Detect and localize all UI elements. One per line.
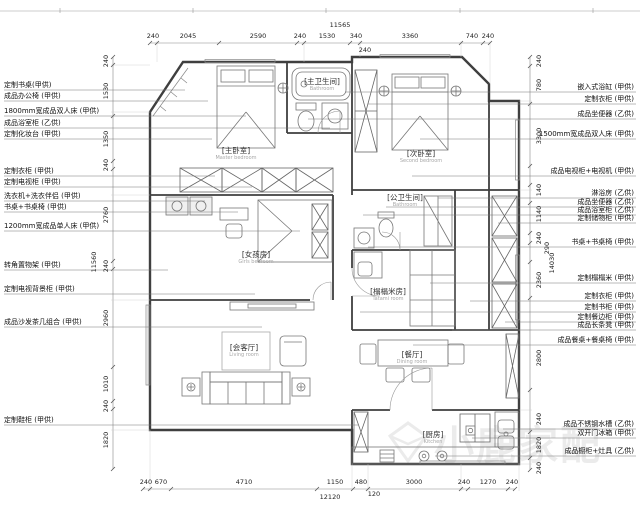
dim-bottom-seg: 480	[355, 478, 367, 486]
label-shoe-cabinet: 定制鞋柜 (甲供)	[4, 416, 54, 424]
room-label-public-bath: [公卫生间] Bathroom	[387, 194, 423, 208]
dim-right-seg: 3300	[535, 128, 543, 145]
room-label-dining-room: [餐厅] Dining room	[397, 351, 428, 365]
room-zh: [餐厅]	[402, 350, 423, 359]
leader-lines-left	[4, 90, 358, 425]
label-fridge: 双开门冰箱 (甲供)	[577, 429, 634, 437]
label-wardrobe: 定制衣柜 (甲供)	[4, 167, 54, 175]
dim-right-seg: 1820	[535, 437, 543, 454]
dim-right-seg: 2800	[535, 350, 543, 367]
dim-top-seg: 340	[350, 32, 362, 40]
label-sideboard: 定制餐边柜 (甲供)	[577, 313, 634, 321]
label-toilet-2: 成品坐便器 (乙供)	[577, 198, 634, 206]
label-desk-chair-2: 书桌+书桌椅 (甲供)	[571, 238, 634, 246]
dim-bottom-seg: 3000	[406, 478, 423, 486]
label-bath-cabinet-2: 成品浴室柜 (乙供)	[577, 206, 634, 214]
room-en: Dining room	[397, 359, 428, 365]
dim-right-total: 14030	[548, 253, 556, 274]
label-office-chair: 成品办公椅 (甲供)	[4, 92, 61, 100]
dim-left-seg: 1010	[102, 376, 110, 393]
dim-bottom-sub: 120	[368, 490, 380, 498]
dim-right-seg: 780	[535, 79, 543, 91]
dim-top-seg: 2045	[180, 32, 197, 40]
label-tv-cabinet: 定制电视柜 (甲供)	[4, 178, 61, 186]
label-wardrobe-2: 定制衣柜 (甲供)	[584, 95, 634, 103]
room-label-living-room: [会客厅] Living room	[229, 344, 258, 358]
dim-bottom-total: 12120	[320, 493, 341, 501]
label-kitchen-cabinet: 成品橱柜+灶具 (乙供)	[564, 447, 634, 455]
dim-top-seg: 240	[482, 32, 494, 40]
dim-left-seg: 240	[102, 159, 110, 171]
dim-top-seg: 740	[466, 32, 478, 40]
dim-top-seg: 2590	[250, 32, 267, 40]
room-zh: [主卫生间]	[304, 77, 340, 86]
label-dining-set: 成品餐桌+餐桌椅 (甲供)	[557, 336, 634, 344]
floor-plan-page: 小鹿家配	[0, 0, 640, 512]
label-bench: 成品长条凳 (甲供)	[577, 321, 634, 329]
label-storage-cabinet: 定制储物柜 (甲供)	[577, 214, 634, 222]
dim-bottom-seg: 1270	[480, 478, 497, 486]
dim-left-seg: 2760	[102, 207, 110, 224]
label-bathtub: 嵌入式浴缸 (甲供)	[577, 83, 634, 91]
room-label-kitchen: [厨房] Kitchen	[423, 431, 444, 445]
dim-right-seg: 2360	[535, 272, 543, 289]
room-label-master-bath: [主卫生间] Bathroom	[304, 78, 340, 92]
room-zh: [厨房]	[423, 430, 444, 439]
label-bookcase: 定制书柜 (甲供)	[584, 303, 634, 311]
dim-right-seg: 1140	[535, 206, 543, 223]
dim-bottom-seg: 240	[140, 478, 152, 486]
label-desk-chair: 书桌+书桌椅 (甲供)	[4, 203, 67, 211]
room-zh: [公卫生间]	[387, 193, 423, 202]
label-dresser: 定制化妆台 (甲供)	[4, 130, 61, 138]
dim-left-seg: 2960	[102, 310, 110, 327]
room-en: Kitchen	[423, 439, 444, 445]
dim-top-seg: 1530	[319, 32, 336, 40]
dim-right-seg: 240	[535, 55, 543, 67]
dim-top-seg: 240	[294, 32, 306, 40]
dim-bottom-seg: 670	[155, 478, 167, 486]
label-desk-custom: 定制书桌(甲供)	[4, 81, 51, 89]
dim-left-seg: 240	[102, 400, 110, 412]
dim-top-total: 11565	[330, 21, 351, 29]
dim-left-seg: 1350	[102, 131, 110, 148]
room-en: Second bedroom	[400, 158, 442, 164]
room-zh: [次卧室]	[407, 149, 435, 158]
label-wardrobe-3: 定制衣柜 (甲供)	[584, 292, 634, 300]
dim-bottom-seg: 1150	[327, 478, 344, 486]
dim-bottom-seg: 240	[506, 478, 518, 486]
label-double-bed-1800: 1800mm宽成品双人床 (甲供)	[4, 107, 99, 115]
room-en: Girls bedroom	[238, 259, 273, 265]
label-sofa-set: 成品沙发茶几组合 (甲供)	[4, 318, 82, 326]
room-en: Master bedroom	[215, 155, 256, 161]
room-zh: [女孩房]	[242, 250, 270, 259]
room-en: Tatami room	[370, 296, 406, 302]
label-toilet-1: 成品坐便器 (乙供)	[577, 110, 634, 118]
room-label-second-bedroom: [次卧室] Second bedroom	[400, 150, 442, 164]
room-zh: [榻榻米房]	[370, 287, 406, 296]
dim-top-sub: 240	[359, 46, 371, 54]
room-label-master-bedroom: [主卧室] Master bedroom	[215, 147, 256, 161]
room-zh: [会客厅]	[230, 343, 258, 352]
label-single-bed-1200: 1200mm宽成品单人床 (甲供)	[4, 222, 99, 230]
dim-left-total: 11560	[90, 252, 98, 273]
dim-right-seg: 240	[535, 462, 543, 474]
dim-left-seg: 240	[102, 55, 110, 67]
room-en: Bathroom	[387, 202, 423, 208]
room-label-girls-room: [女孩房] Girls bedroom	[238, 251, 273, 265]
dim-right-seg: 240	[535, 413, 543, 425]
label-washer: 洗衣机+洗衣伴侣 (甲供)	[4, 192, 81, 200]
label-tv-wall-cabinet: 定制电视背景柜 (甲供)	[4, 285, 75, 293]
label-bath-cabinet: 成品浴室柜 (乙供)	[4, 119, 61, 127]
dim-right-seg: 140	[535, 184, 543, 196]
room-label-tatami-room: [榻榻米房] Tatami room	[370, 288, 406, 302]
dim-left-seg: 240	[102, 260, 110, 272]
label-tatami: 定制榻榻米 (甲供)	[577, 274, 634, 282]
room-en: Bathroom	[304, 86, 340, 92]
dim-left-seg: 1820	[102, 432, 110, 449]
dim-left-seg: 1530	[102, 83, 110, 100]
dim-top-seg: 3360	[402, 32, 419, 40]
room-en: Living room	[229, 352, 258, 358]
label-tv-cabinet-tv: 成品电视柜+电视机 (甲供)	[550, 167, 634, 175]
label-shower-room: 淋浴房 (乙供)	[591, 189, 634, 197]
label-corner-shelf: 转角置物架 (甲供)	[4, 261, 61, 269]
dim-top-seg: 240	[147, 32, 159, 40]
label-double-bed-1500: 1500mm宽成品双人床 (甲供)	[539, 130, 634, 138]
dim-bottom-seg: 240	[458, 478, 470, 486]
label-sink: 成品不锈钢水槽 (乙供)	[563, 420, 634, 428]
dim-right-seg: 240	[535, 232, 543, 244]
room-zh: [主卧室]	[222, 146, 250, 155]
dim-bottom-seg: 4710	[236, 478, 253, 486]
